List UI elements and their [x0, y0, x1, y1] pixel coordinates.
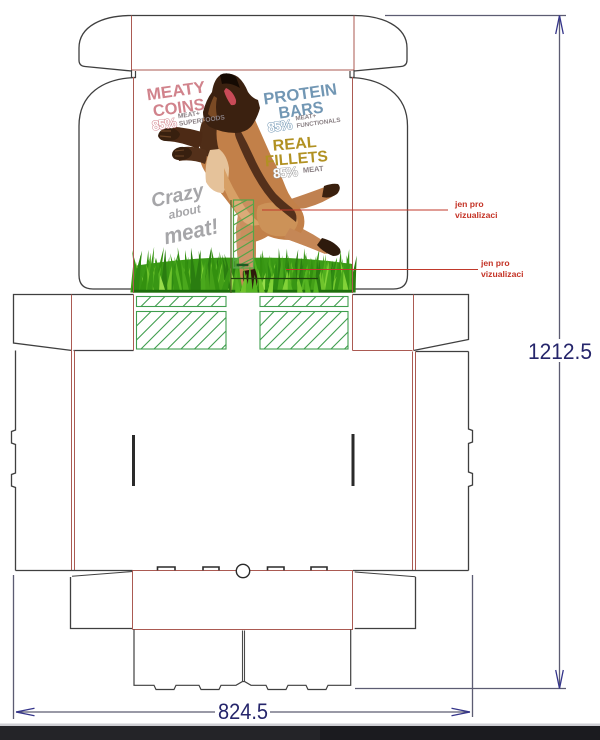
svg-text:824.5: 824.5: [218, 699, 268, 724]
svg-text:1212.5: 1212.5: [528, 339, 592, 364]
svg-text:MEAT: MEAT: [302, 164, 324, 175]
svg-text:jen pro: jen pro: [454, 199, 484, 209]
svg-text:jen pro: jen pro: [480, 258, 510, 268]
svg-text:vizualizaci: vizualizaci: [455, 210, 498, 220]
svg-text:85%: 85%: [272, 164, 298, 181]
svg-text:vizualizaci: vizualizaci: [481, 269, 524, 279]
